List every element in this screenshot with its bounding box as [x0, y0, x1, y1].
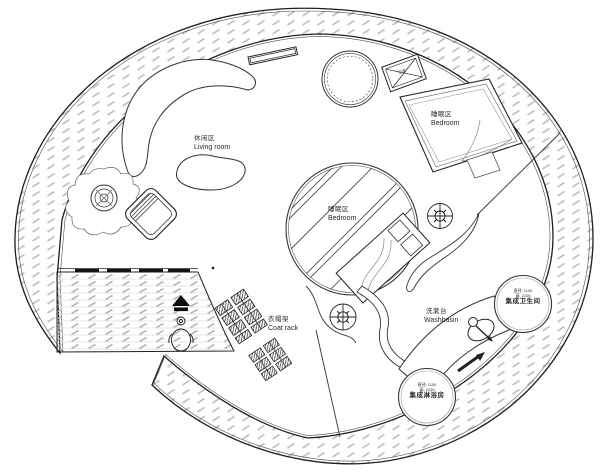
washbasin-label-zh: 洗漱台	[426, 308, 447, 316]
shower-pod-name: 集成淋浴房	[387, 392, 467, 400]
toilet-pod-name: 集成卫生间	[483, 298, 563, 306]
coffee-table	[176, 155, 245, 190]
bedroom-center-label-zh: 睡眠区	[328, 206, 349, 214]
washbasin-label-en: Washbasin	[424, 317, 458, 325]
floor-plan: 休闲区 Living room 睡眠区 Bedroom 睡眠区 Bedroom …	[0, 0, 611, 473]
coat-rack-label-en: Coat rack	[268, 325, 298, 333]
coat-rack-unit	[249, 338, 292, 381]
crosshair-marker-icon	[428, 204, 453, 229]
reference-dot	[212, 267, 215, 270]
living-room-label-zh: 休闲区	[194, 135, 215, 143]
bedroom-center-label-en: Bedroom	[328, 215, 356, 223]
partition-line-entry	[316, 330, 340, 437]
entrance-deck	[57, 267, 234, 352]
coat-rack-label-zh: 衣帽架	[268, 316, 289, 324]
wall-shelf	[248, 47, 298, 65]
bedroom-upper-label-zh: 睡眠区	[431, 111, 452, 119]
faucet-icon	[469, 318, 478, 327]
shower-pod-label: 直径: 1100 高: 2100 集成淋浴房	[387, 382, 467, 400]
living-room-label-en: Living room	[194, 144, 230, 152]
toilet-pod-label: 直径: 1100 高: 2100 集成卫生间	[483, 288, 563, 306]
crosshair-marker-icon	[330, 304, 356, 330]
bedroom-upper-label-en: Bedroom	[431, 120, 459, 128]
floor-plan-drawing	[0, 0, 611, 473]
round-table	[322, 51, 378, 107]
